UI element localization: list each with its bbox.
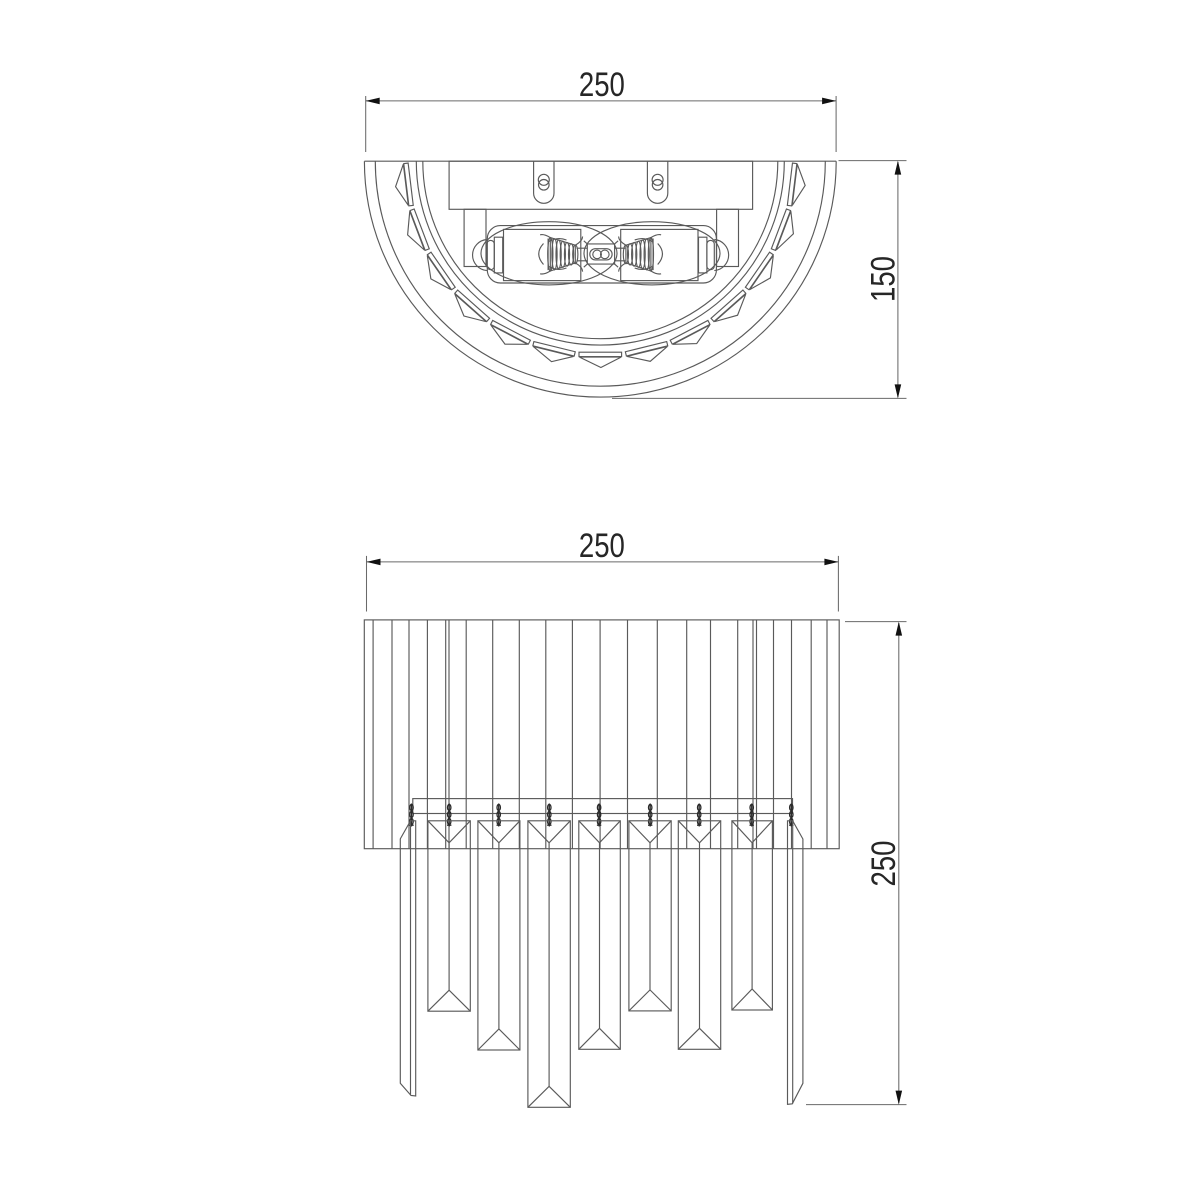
svg-text:150: 150 [865, 256, 903, 302]
svg-text:250: 250 [579, 527, 625, 565]
svg-text:250: 250 [865, 841, 903, 887]
svg-text:250: 250 [579, 66, 625, 104]
